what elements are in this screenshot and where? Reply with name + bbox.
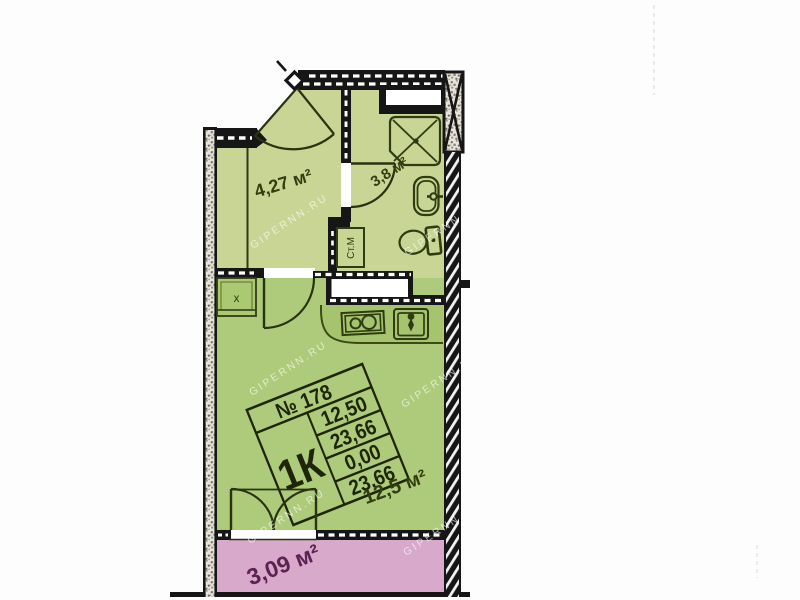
svg-text:Ст.М: Ст.М bbox=[346, 237, 357, 259]
svg-text:x: x bbox=[234, 293, 240, 305]
